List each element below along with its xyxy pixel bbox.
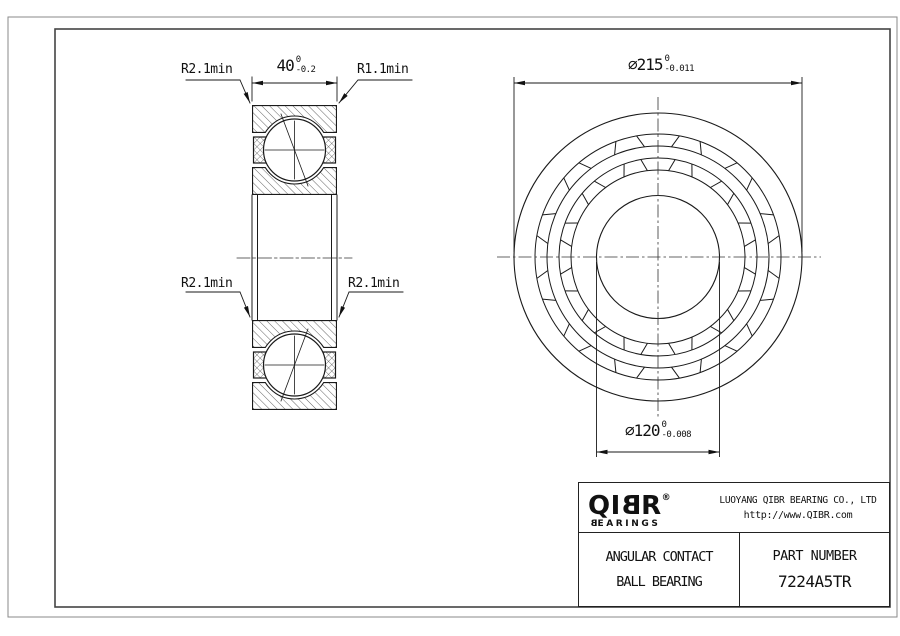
title-block-header-row: QIBR® BEARINGS LUOYANG QIBR BEARING CO.,… <box>579 483 889 533</box>
width-tol-lower: -0.2 <box>296 66 316 76</box>
product-name-line2: BALL BEARING <box>616 574 702 590</box>
outer-dia-value: 215 <box>637 55 663 74</box>
side-face-lines <box>252 195 337 320</box>
company-info: LUOYANG QIBR BEARING CO., LTD http://www… <box>707 483 889 532</box>
part-number-cell: PART NUMBER 7224A5TR <box>739 533 889 606</box>
width-dimension-text: 40 0 -0.2 <box>277 56 316 75</box>
title-block: QIBR® BEARINGS LUOYANG QIBR BEARING CO.,… <box>578 482 890 607</box>
part-number-value: 7224A5TR <box>778 572 851 591</box>
radius-label-bottom-right: R2.1min <box>348 276 399 291</box>
company-website: http://www.QIBR.com <box>744 510 853 521</box>
product-name-line1: ANGULAR CONTACT <box>606 549 713 565</box>
outer-dia-symbol: ⌀ <box>628 55 637 74</box>
width-dimension-lines <box>252 77 337 101</box>
drawing-sheet: R2.1min R1.1min R2.1min R2.1min 40 0 -0.… <box>0 0 900 636</box>
radius-label-top-left: R2.1min <box>181 62 232 77</box>
company-logo: QIBR® BEARINGS <box>579 483 707 532</box>
title-block-detail-row: ANGULAR CONTACT BALL BEARING PART NUMBER… <box>579 533 889 606</box>
logo-subtitle: BEARINGS <box>588 519 707 529</box>
bore-dia-value: 120 <box>634 421 660 440</box>
bore-diameter-text: ⌀120 0 -0.008 <box>625 421 691 440</box>
front-view-centerlines <box>497 97 821 417</box>
front-view <box>497 77 821 457</box>
bore-dia-symbol: ⌀ <box>625 421 634 440</box>
company-name: LUOYANG QIBR BEARING CO., LTD <box>719 495 876 506</box>
bore-dia-tol-lower: -0.008 <box>662 431 692 441</box>
product-name-cell: ANGULAR CONTACT BALL BEARING <box>579 533 739 606</box>
radius-label-bottom-left: R2.1min <box>181 276 232 291</box>
outer-dia-tol-lower: -0.011 <box>665 65 695 75</box>
radius-label-top-right: R1.1min <box>357 62 408 77</box>
width-value: 40 <box>277 56 294 75</box>
registered-trademark-symbol: ® <box>662 493 671 503</box>
logo-wordmark: QIBR® <box>588 486 707 518</box>
outer-diameter-text: ⌀215 0 -0.011 <box>628 55 694 74</box>
cross-section-view <box>186 77 412 410</box>
part-number-label: PART NUMBER <box>773 548 857 564</box>
